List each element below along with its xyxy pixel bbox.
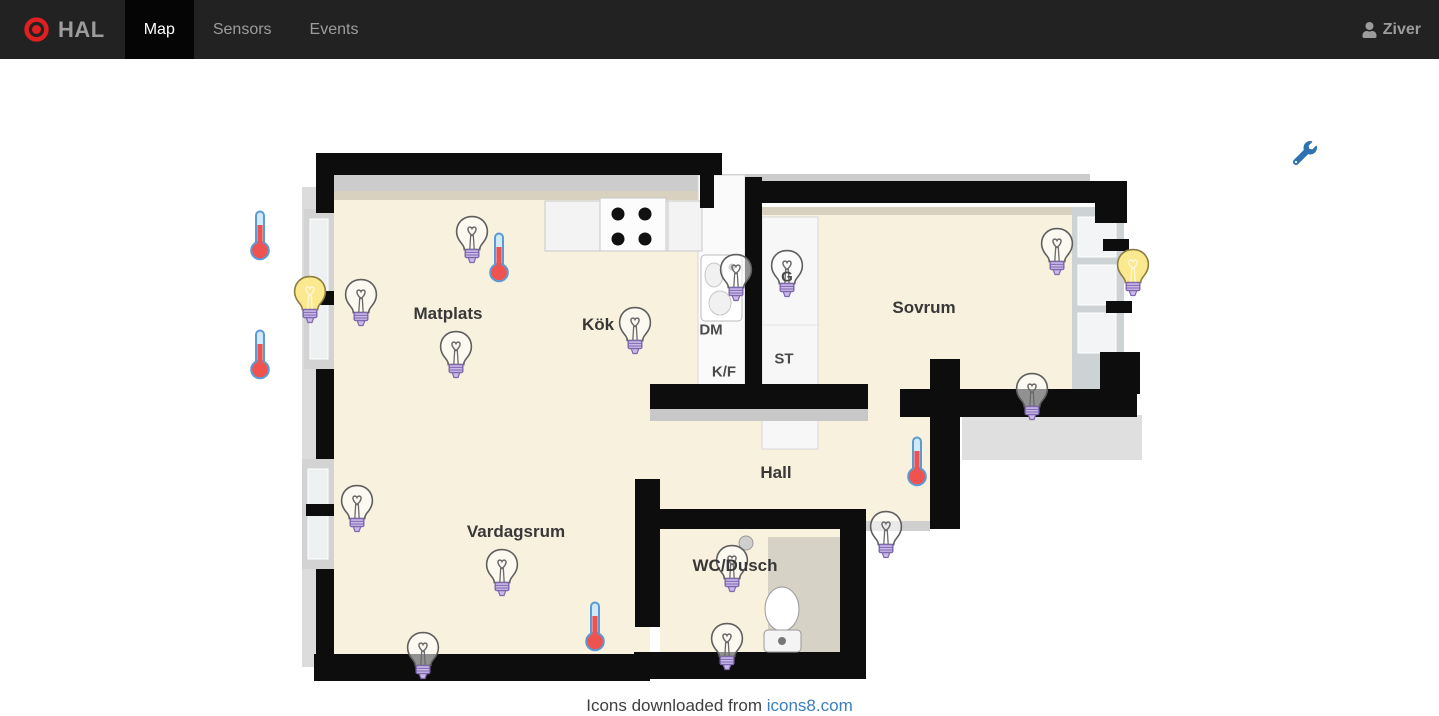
user-icon	[1362, 22, 1377, 38]
settings-wrench-button[interactable]	[1293, 141, 1319, 167]
user-name: Ziver	[1383, 21, 1421, 39]
credits-text: Icons downloaded from	[586, 696, 767, 715]
light-bulb-vardagsrum-window-off[interactable]	[340, 484, 374, 534]
light-bulb-vardagsrum-ceiling-off[interactable]	[485, 548, 519, 598]
room-label-k-f: K/F	[712, 364, 736, 381]
light-bulb-kok-off[interactable]	[618, 306, 652, 356]
map-view: MatplatsKökSovrumHallVardagsrumWC/DuschD…	[0, 59, 1439, 675]
room-label-k-k: Kök	[582, 315, 614, 335]
room-label-wc-dusch: WC/Dusch	[693, 556, 778, 576]
room-label-hall: Hall	[760, 463, 791, 483]
light-bulb-sovrum-south-off[interactable]	[1015, 372, 1049, 422]
brand-title: HAL	[58, 17, 105, 43]
light-bulb-matplats-bay-on[interactable]	[293, 275, 327, 325]
light-bulb-matplats-table-off[interactable]	[439, 330, 473, 380]
light-bulb-matplats-ceiling-off[interactable]	[455, 215, 489, 265]
hal-logo-icon	[23, 16, 50, 43]
floor-plan-map: MatplatsKökSovrumHallVardagsrumWC/DuschD…	[300, 147, 1150, 687]
tab-map[interactable]: Map	[125, 0, 194, 59]
room-label-sovrum: Sovrum	[892, 298, 955, 318]
user-menu[interactable]: Ziver	[1362, 0, 1439, 59]
kitchen-counter	[545, 198, 702, 251]
light-bulb-sovrum-bay-on[interactable]	[1116, 248, 1150, 298]
light-bulb-vardagsrum-balcony-off[interactable]	[406, 631, 440, 681]
room-label-g: G	[781, 269, 793, 286]
top-navbar: HAL Map Sensors Events Ziver	[0, 0, 1439, 59]
light-bulb-sovrum-window-off[interactable]	[1040, 227, 1074, 277]
tab-sensors[interactable]: Sensors	[194, 0, 291, 59]
thermometer-outdoor-north[interactable]	[248, 209, 272, 261]
thermometer-vardagsrum[interactable]	[583, 600, 607, 652]
room-label-dm: DM	[699, 322, 722, 339]
icons8-link[interactable]: icons8.com	[767, 696, 853, 715]
tab-events[interactable]: Events	[291, 0, 378, 59]
thermometer-matplats[interactable]	[487, 231, 511, 283]
thermometer-outdoor-south[interactable]	[248, 328, 272, 380]
light-bulb-wc-mirror-off[interactable]	[710, 622, 744, 672]
brand[interactable]: HAL	[0, 0, 125, 59]
nav-tabs: Map Sensors Events	[125, 0, 378, 59]
room-label-st: ST	[774, 351, 793, 368]
light-bulb-kok-sink-off[interactable]	[719, 253, 753, 303]
light-bulb-hall-off[interactable]	[869, 510, 903, 560]
credits-caption: Icons downloaded from icons8.com	[0, 696, 1439, 716]
thermometer-hall-wall[interactable]	[905, 435, 929, 487]
room-label-matplats: Matplats	[414, 304, 483, 324]
wrench-icon	[1293, 141, 1317, 165]
light-bulb-matplats-window-off[interactable]	[344, 278, 378, 328]
toilet	[764, 587, 801, 652]
room-label-vardagsrum: Vardagsrum	[467, 522, 565, 542]
